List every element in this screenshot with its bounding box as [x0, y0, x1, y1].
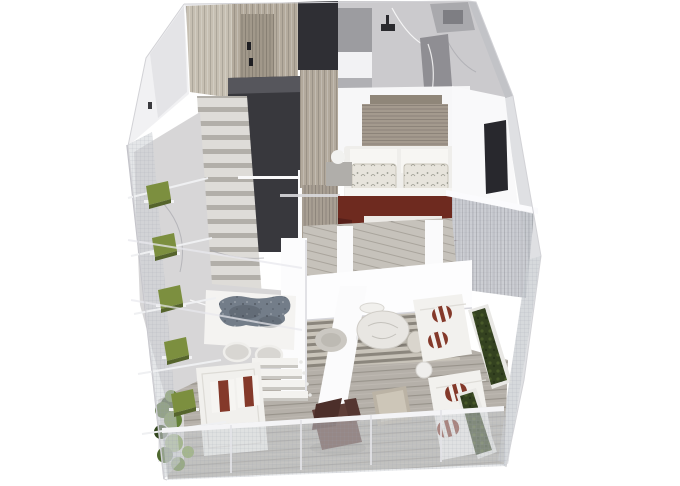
step-riser	[258, 398, 308, 401]
pillow-right-print	[404, 164, 448, 190]
entry-wood-wall-grain	[186, 4, 232, 98]
rail-post	[370, 415, 372, 465]
rail-finial	[305, 382, 309, 386]
duvet-fold	[345, 188, 462, 197]
shower-fixture	[381, 24, 395, 31]
side-table	[416, 362, 432, 378]
rail-finial	[308, 393, 312, 397]
step-riser	[256, 387, 305, 390]
rail-post	[300, 420, 302, 470]
rug-shade-patch	[229, 305, 261, 319]
floorplan-svg	[0, 0, 680, 486]
wall-tv-panel	[484, 120, 508, 194]
daybed-pillow-left-stripe	[218, 380, 230, 412]
shower-pipe	[386, 15, 389, 25]
door-handle	[247, 42, 251, 50]
sphere-lamp-left	[331, 150, 345, 164]
cabinet-white-section	[334, 52, 372, 78]
wire-chair	[224, 343, 250, 361]
pillow-left-print	[352, 164, 396, 190]
rail-post	[230, 425, 232, 473]
door-hardware-mark	[148, 102, 152, 109]
dark-hallway	[298, 1, 338, 70]
stair-glass-rail	[238, 176, 300, 179]
wardrobe-top-face	[228, 76, 302, 94]
step-tread	[258, 391, 308, 398]
floorplan-render	[0, 0, 680, 486]
gray-cabinet	[334, 8, 372, 52]
door-handle	[249, 58, 253, 66]
round-pouf-inner	[321, 333, 341, 347]
void-rail	[280, 194, 340, 197]
vanity-basin	[443, 10, 463, 24]
nightstand-left	[326, 162, 352, 186]
rail-finial	[302, 371, 306, 375]
rail-finial	[299, 360, 303, 364]
round-marble-table	[357, 311, 409, 349]
headboard-slat-lines	[362, 104, 448, 152]
rail-post	[440, 410, 442, 462]
step-tread	[254, 369, 302, 376]
step-tread	[256, 380, 305, 387]
